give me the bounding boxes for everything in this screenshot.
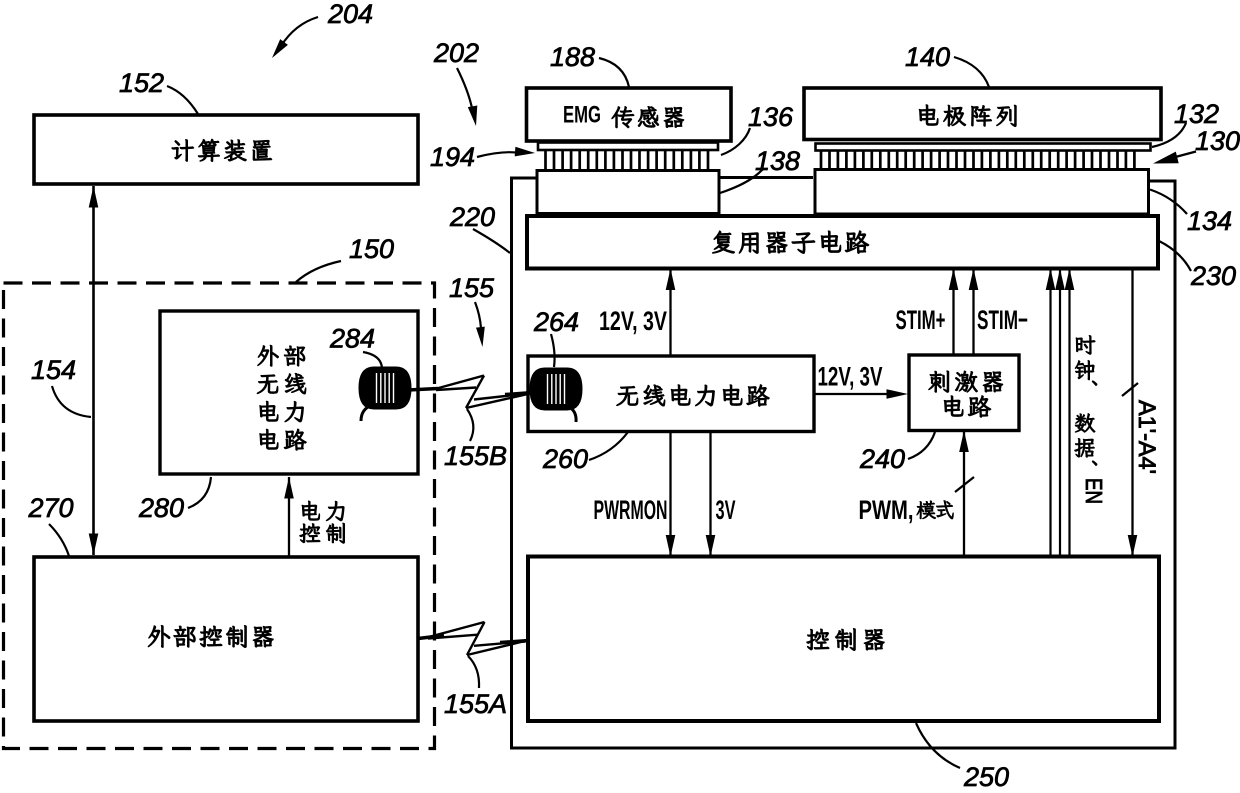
svg-text:130: 130 xyxy=(1195,126,1240,156)
svg-text:260: 260 xyxy=(542,444,588,474)
svg-text:240: 240 xyxy=(859,444,905,474)
svg-text:134: 134 xyxy=(1187,206,1232,236)
svg-text:220: 220 xyxy=(449,202,495,232)
svg-text:150: 150 xyxy=(349,234,394,264)
svg-text:155: 155 xyxy=(449,273,495,303)
svg-text:STIM−: STIM− xyxy=(977,305,1028,335)
svg-text:140: 140 xyxy=(905,42,950,72)
svg-text:155B: 155B xyxy=(444,441,507,471)
svg-text:3V: 3V xyxy=(716,495,736,525)
svg-text:264: 264 xyxy=(533,307,579,337)
svg-text:EMG: EMG xyxy=(563,102,601,129)
svg-text:284: 284 xyxy=(329,324,375,354)
svg-text:132: 132 xyxy=(1174,99,1219,129)
svg-text:PWRMON: PWRMON xyxy=(594,495,668,525)
svg-text:A1'-A4': A1'-A4' xyxy=(1133,400,1160,474)
svg-text:204: 204 xyxy=(327,0,373,29)
svg-text:270: 270 xyxy=(28,493,74,523)
svg-text:250: 250 xyxy=(963,762,1009,788)
svg-text:230: 230 xyxy=(1190,261,1236,291)
svg-text:152: 152 xyxy=(119,68,164,98)
svg-text:154: 154 xyxy=(31,355,76,385)
svg-text:STIM+: STIM+ xyxy=(896,305,946,335)
svg-text:136: 136 xyxy=(748,102,794,132)
svg-text:12V, 3V: 12V, 3V xyxy=(818,362,883,392)
svg-text:155A: 155A xyxy=(444,689,507,719)
svg-text:EN: EN xyxy=(1081,478,1107,504)
svg-text:194: 194 xyxy=(430,142,475,172)
svg-text:12V, 3V: 12V, 3V xyxy=(599,306,667,336)
svg-text:202: 202 xyxy=(433,38,479,68)
svg-text:188: 188 xyxy=(550,42,595,72)
svg-text:280: 280 xyxy=(138,493,184,523)
svg-text:PWM,: PWM, xyxy=(859,495,914,525)
